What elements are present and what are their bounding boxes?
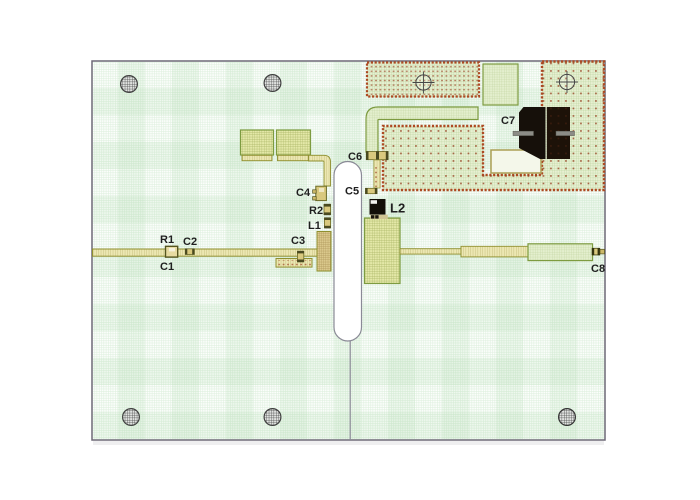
svg-text:R2: R2	[309, 205, 323, 217]
svg-text:R1: R1	[160, 234, 174, 246]
svg-text:C6: C6	[348, 151, 362, 163]
svg-text:C8: C8	[591, 263, 605, 275]
svg-text:C3: C3	[291, 235, 305, 247]
svg-text:C4: C4	[296, 187, 311, 199]
svg-text:C1: C1	[160, 261, 174, 273]
svg-text:C2: C2	[183, 236, 197, 248]
svg-text:C7: C7	[501, 115, 515, 127]
svg-text:L1: L1	[308, 220, 321, 232]
svg-text:L2: L2	[390, 201, 405, 216]
svg-text:C5: C5	[345, 186, 359, 198]
